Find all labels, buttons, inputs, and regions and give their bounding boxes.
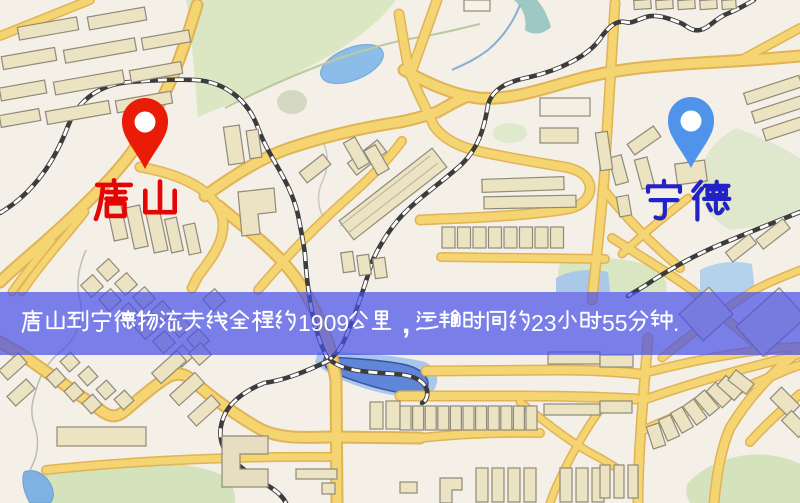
svg-text:23: 23 [531,310,557,336]
svg-text:1909: 1909 [298,310,349,336]
svg-text:.: . [673,310,679,336]
svg-text:,: , [402,307,410,340]
svg-text:55: 55 [602,310,628,336]
